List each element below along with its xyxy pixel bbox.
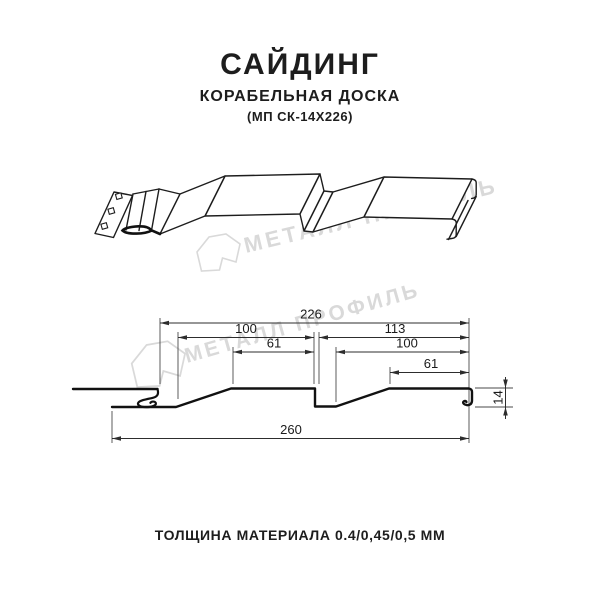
nail-hole-icon <box>108 208 115 215</box>
dim-label-61-left: 61 <box>267 336 281 351</box>
nail-hole-icon <box>115 193 122 200</box>
thickness-note: ТОЛЩИНА МАТЕРИАЛА 0.4/0,45/0,5 ММ <box>0 527 600 543</box>
extension-lines <box>112 318 513 443</box>
dim-label-113: 113 <box>385 321 406 336</box>
watermark-logo-middle: МЕТАЛЛ ПРОФИЛЬ <box>132 279 423 388</box>
dim-label-61-right: 61 <box>424 356 438 371</box>
dim-label-100-left: 100 <box>235 321 257 336</box>
dim-label-226: 226 <box>300 307 322 322</box>
iso-plateau2-face <box>364 177 472 219</box>
dim-label-100-right: 100 <box>396 336 418 351</box>
profile-start-lock <box>138 389 158 407</box>
iso-nail-strip <box>95 192 133 238</box>
catalog-page: САЙДИНГ КОРАБЕЛЬНАЯ ДОСКА (МП СК-14Х226)… <box>0 0 600 600</box>
nail-hole-icon <box>101 223 108 230</box>
technical-drawing: МЕТАЛЛ ПРОФИЛЬ <box>0 0 600 600</box>
cross-section-profile <box>73 389 472 408</box>
dim-label-14: 14 <box>491 390 506 404</box>
dimension-lines <box>112 321 508 441</box>
dim-label-260: 260 <box>280 422 302 437</box>
